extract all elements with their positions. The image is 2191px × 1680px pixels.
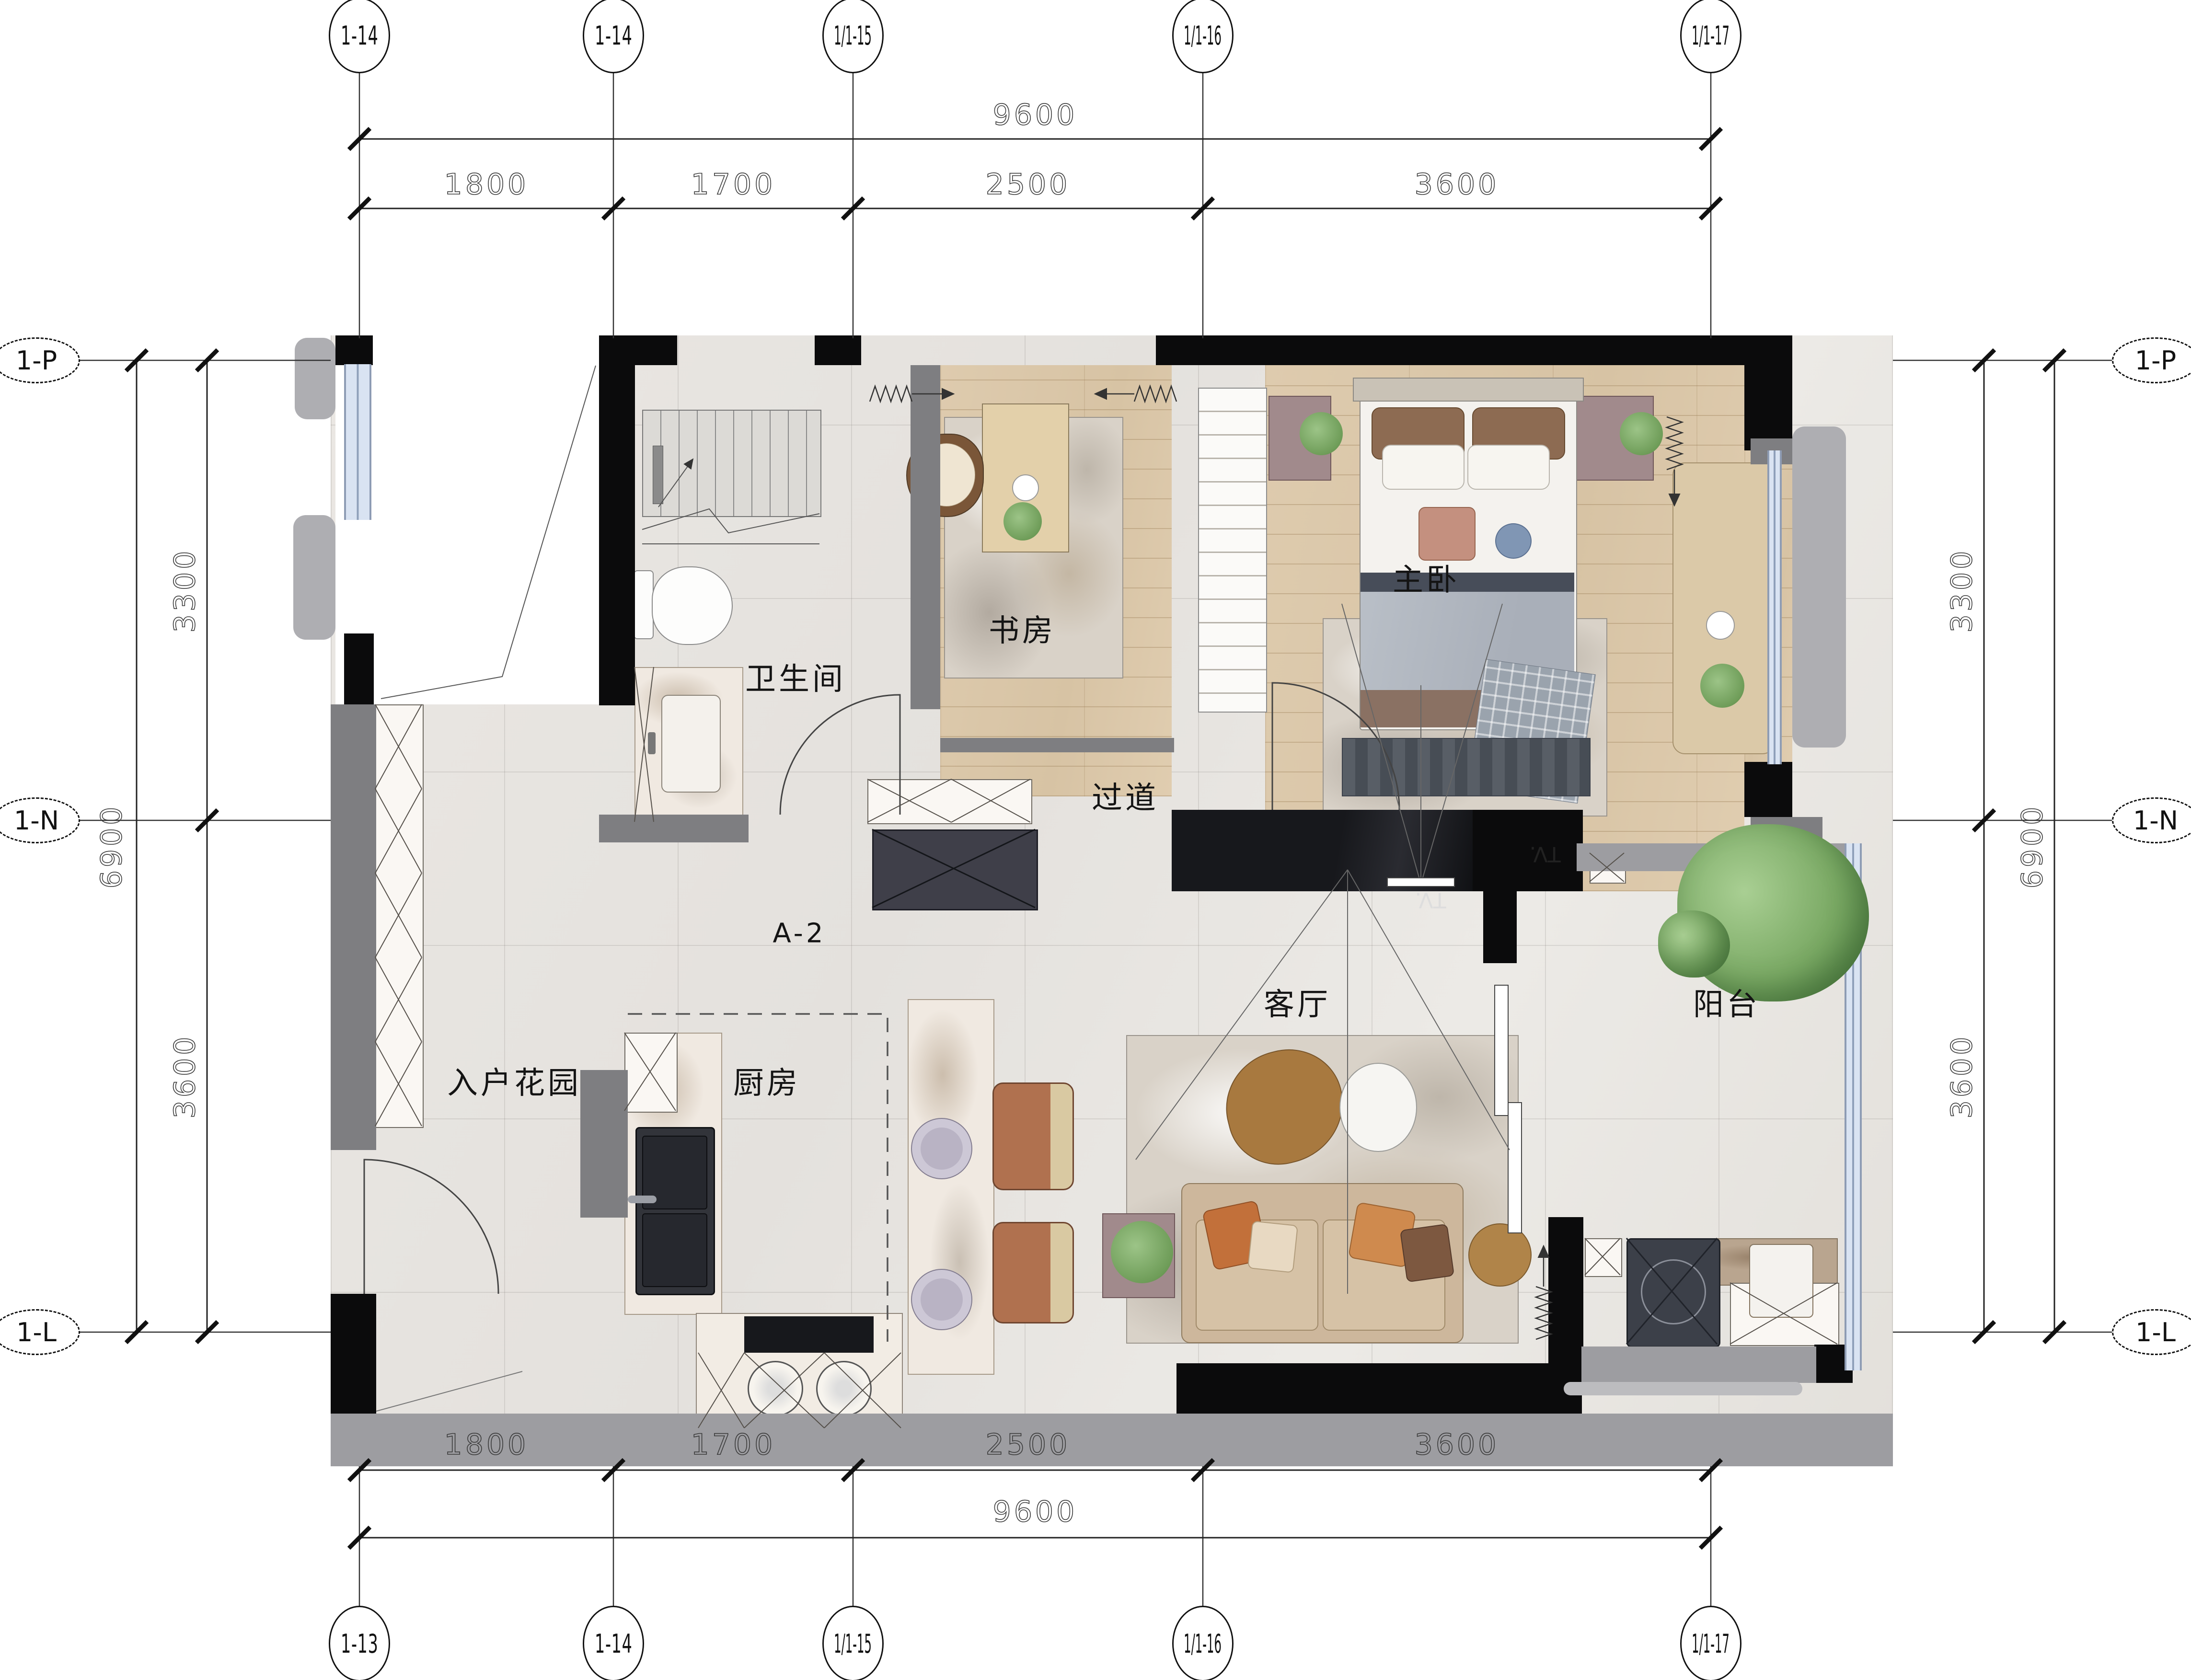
dim-bottom-seg-2: 1700 (691, 1428, 776, 1461)
nightstand-plant-right (1620, 412, 1663, 455)
grid-bubble-top-3: 1/1-15 (822, 0, 884, 73)
grid-label: 1-P (16, 345, 57, 376)
bed-headboard (1353, 378, 1584, 402)
dim-bottom-seg-4: 3600 (1415, 1428, 1499, 1461)
bedroom-tv-label: TV. (1529, 842, 1560, 866)
unit-label: A-2 (773, 918, 826, 949)
grid-bubble-top-5: 1/1-17 (1680, 0, 1741, 73)
dim-left-overall: 6900 (95, 804, 128, 889)
room-label-master-bedroom: 主卧 (1393, 555, 1460, 599)
kitchen-upper-cabinet (624, 1033, 678, 1113)
grid-label: 1-L (2135, 1317, 2176, 1347)
room-label-balcony: 阳台 (1693, 980, 1760, 1024)
washer-drum (1641, 1259, 1706, 1324)
wall (1548, 1217, 1583, 1382)
void-area (335, 335, 599, 704)
room-label-entry-garden: 入户花园 (447, 1059, 581, 1103)
window (677, 336, 815, 364)
ac-platform (1792, 426, 1846, 748)
ac-platform (293, 515, 335, 640)
window (1767, 450, 1782, 764)
partition (580, 1070, 628, 1218)
desk-plant (1003, 502, 1042, 541)
bar-stool-top (992, 1082, 1074, 1190)
sliding-door-panel (1494, 985, 1509, 1116)
outer-ledge (1564, 1382, 1802, 1395)
dim-top-overall: 9600 (993, 98, 1078, 132)
burner-left (748, 1361, 803, 1416)
room-label-hallway: 过道 (1092, 773, 1159, 817)
living-plant (1111, 1221, 1173, 1283)
toilet-tank (634, 570, 654, 639)
partition (331, 704, 376, 1150)
grid-label: 1/1-17 (1692, 1629, 1730, 1659)
pillow-pink (1418, 507, 1476, 561)
window (371, 338, 599, 364)
dim-top-seg-2: 1700 (691, 168, 776, 201)
blanket-knot (1495, 523, 1532, 559)
grid-label: 1-P (2135, 345, 2176, 376)
hallway-cabinet (867, 779, 1032, 824)
grid-bubble-right-N: 1-N (2112, 797, 2191, 843)
island-plate-bottom (911, 1269, 972, 1330)
vanity-faucet (648, 732, 656, 754)
duct-shaft (872, 829, 1038, 910)
living-tv-label: TV. (1415, 888, 1446, 912)
grid-bubble-top-2: 1-14 (583, 0, 644, 73)
wall (815, 335, 861, 365)
partition (599, 815, 749, 842)
wall (599, 335, 677, 365)
dim-left-seg-1: 3300 (168, 548, 202, 633)
kitchen-sink-basin-bottom (642, 1213, 707, 1287)
balcony-bench-plant (1700, 664, 1744, 708)
ac-platform (295, 338, 335, 419)
grid-bubble-left-N: 1-N (0, 797, 80, 843)
grid-label: 1/1-17 (1692, 21, 1730, 51)
wall (335, 335, 373, 365)
grid-bubble-left-P: 1-P (0, 337, 80, 383)
window (861, 336, 1156, 364)
room-label-kitchen: 厨房 (733, 1059, 800, 1103)
grid-label: 1-L (16, 1317, 57, 1347)
room-label-bathroom: 卫生间 (745, 655, 846, 699)
wardrobe (1198, 388, 1267, 713)
grid-label: 1-13 (341, 1629, 378, 1659)
staircase (642, 410, 821, 517)
outer-wall-bottom (331, 1414, 1893, 1466)
dim-bottom-seg-3: 2500 (986, 1428, 1071, 1461)
dim-bottom-overall: 9600 (993, 1495, 1078, 1529)
window (344, 364, 371, 520)
pillow-white-right (1467, 445, 1550, 490)
stove-back-panel (744, 1316, 874, 1353)
side-table (1468, 1223, 1532, 1287)
grid-bubble-bottom-3: 1/1-15 (822, 1606, 884, 1680)
dim-right-seg-2: 3600 (1945, 1034, 1979, 1119)
grid-label: 1-14 (595, 21, 632, 51)
grid-label: 1-14 (341, 21, 378, 51)
grid-label: 1-N (14, 805, 59, 836)
burner-right (816, 1361, 872, 1416)
dim-top-seg-3: 2500 (986, 168, 1071, 201)
grid-bubble-right-L: 1-L (2112, 1309, 2191, 1355)
grid-bubble-top-4: 1/1-16 (1172, 0, 1234, 73)
wall (1473, 810, 1583, 891)
wall (1483, 891, 1517, 963)
dim-right-seg-1: 3300 (1945, 548, 1979, 633)
dim-top-seg-1: 1800 (444, 168, 529, 201)
toilet-bowl (652, 566, 733, 645)
pillow-white-left (1382, 445, 1465, 490)
grid-bubble-top-1: 1-14 (329, 0, 390, 73)
wall (599, 365, 635, 705)
partition (911, 365, 940, 709)
partition (940, 738, 1174, 752)
window (379, 671, 599, 698)
grid-label: 1/1-16 (1184, 21, 1222, 51)
dim-bottom-seg-1: 1800 (444, 1428, 529, 1461)
grid-label: 1-N (2133, 805, 2178, 836)
sliding-door-panel (1508, 1102, 1522, 1233)
grid-bubble-bottom-1: 1-13 (329, 1606, 390, 1680)
balcony-tree-lobe (1658, 910, 1730, 978)
entry-tall-cabinet (375, 704, 424, 1128)
bed-bench (1342, 738, 1591, 796)
room-label-study: 书房 (989, 606, 1056, 650)
bar-stool-bottom (992, 1222, 1074, 1323)
nightstand-plant-left (1300, 412, 1343, 455)
grid-label: 1/1-16 (1184, 1629, 1222, 1659)
outer-wall-strip (1581, 1346, 1816, 1383)
grid-bubble-right-P: 1-P (2112, 337, 2191, 383)
vanity-sink (661, 695, 721, 793)
dim-right-overall: 6900 (2016, 804, 2049, 889)
wall (1744, 762, 1792, 817)
grid-bubble-bottom-5: 1/1-17 (1680, 1606, 1741, 1680)
grid-bubble-left-L: 1-L (0, 1309, 80, 1355)
laundry-small-cabinet (1585, 1238, 1622, 1277)
wall (331, 1294, 376, 1414)
tv-feature-wall (1172, 810, 1473, 891)
laundry-sink (1749, 1244, 1813, 1318)
sofa-pillow-cream (1247, 1220, 1298, 1273)
grid-bubble-bottom-4: 1/1-16 (1172, 1606, 1234, 1680)
kitchen-faucet (628, 1196, 657, 1203)
balcony-dish (1706, 611, 1735, 640)
grid-bubble-bottom-2: 1-14 (583, 1606, 644, 1680)
floorplan-sheet: 1-14 1-14 1/1-15 1/1-16 1/1-17 1-13 1-14… (0, 0, 2191, 1680)
sofa-pillow-brown (1400, 1224, 1454, 1283)
stair-handrail (653, 446, 663, 504)
grid-label: 1/1-15 (834, 21, 872, 51)
grid-label: 1-14 (595, 1629, 632, 1659)
island-plate-top (911, 1118, 972, 1179)
grid-label: 1/1-15 (834, 1629, 872, 1659)
desk-plate (1012, 474, 1039, 501)
wall (1176, 1363, 1582, 1414)
room-label-living-room: 客厅 (1264, 980, 1331, 1024)
wall (1156, 335, 1792, 365)
wall (1744, 365, 1792, 450)
balcony-bench (1672, 462, 1775, 754)
wall (344, 633, 374, 704)
dim-top-seg-4: 3600 (1415, 168, 1499, 201)
coffee-table-white (1339, 1063, 1417, 1152)
dim-left-seg-2: 3600 (168, 1034, 202, 1119)
